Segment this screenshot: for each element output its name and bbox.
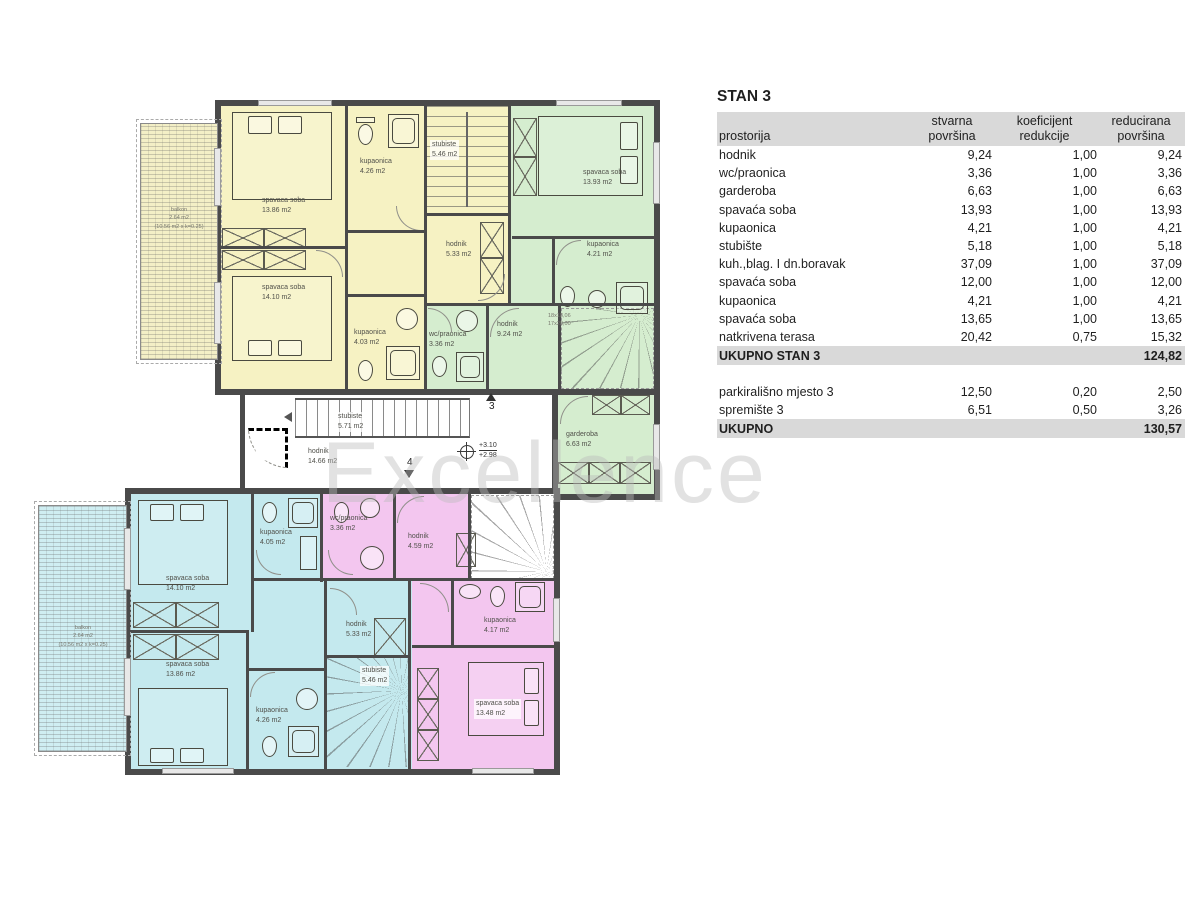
sink-symbol bbox=[456, 310, 478, 332]
wall bbox=[552, 236, 555, 306]
room-label: spavaca soba13.48 m2 bbox=[474, 699, 521, 719]
wall bbox=[345, 230, 427, 233]
pillow-symbol bbox=[180, 504, 204, 521]
table-row: parkirališno mjesto 312,500,202,50 bbox=[717, 383, 1185, 401]
wall bbox=[424, 213, 508, 216]
wardrobe-symbol bbox=[456, 533, 476, 567]
wardrobe-symbol bbox=[417, 699, 439, 730]
room-label: spavaca soba14.10 m2 bbox=[166, 574, 209, 594]
wardrobe-symbol bbox=[133, 634, 176, 660]
table-row: spavaća soba13,651,0013,65 bbox=[717, 310, 1185, 328]
stairs-pink-spiral bbox=[471, 495, 554, 579]
wall bbox=[345, 294, 427, 297]
wardrobe-symbol bbox=[620, 462, 651, 484]
floor-plan-sheet: balkon 2.64 m2 (10.56 m2 x k=0.25) balko… bbox=[0, 0, 1200, 900]
wardrobe-symbol bbox=[133, 602, 176, 628]
wall bbox=[246, 630, 249, 769]
washer-symbol bbox=[360, 546, 384, 570]
wall bbox=[425, 303, 654, 306]
washer-symbol bbox=[456, 352, 484, 382]
room-label: spavaca soba14.10 m2 bbox=[262, 283, 305, 303]
table-row: stubište5,181,005,18 bbox=[717, 237, 1185, 255]
wardrobe-symbol bbox=[589, 462, 620, 484]
room-label: wc/praonica3.36 m2 bbox=[330, 514, 367, 534]
room-label: spavaca soba13.93 m2 bbox=[583, 168, 626, 188]
wall bbox=[408, 580, 411, 769]
room-label: kupaonica4.05 m2 bbox=[260, 528, 292, 548]
wall bbox=[324, 655, 410, 658]
room-label: wc/praonica3.36 m2 bbox=[429, 330, 466, 350]
wardrobe-symbol bbox=[264, 228, 306, 248]
window bbox=[472, 768, 534, 774]
room-label: stubiste5.71 m2 bbox=[336, 412, 365, 432]
wardrobe-symbol bbox=[417, 668, 439, 699]
shower-symbol bbox=[386, 346, 420, 380]
pillow-symbol bbox=[248, 116, 272, 134]
table-row: natkrivena terasa20,420,7515,32 bbox=[717, 328, 1185, 346]
elevation-symbol bbox=[460, 445, 474, 459]
pillow-symbol bbox=[524, 700, 539, 726]
wall bbox=[451, 580, 454, 647]
wardrobe-symbol bbox=[513, 118, 537, 157]
window bbox=[162, 768, 234, 774]
header-stvarna-povrsina: stvarnapovršina bbox=[912, 114, 992, 146]
pillow-symbol bbox=[620, 122, 638, 150]
wall bbox=[320, 494, 323, 582]
table-row: kupaonica4,211,004,21 bbox=[717, 292, 1185, 310]
shower-symbol bbox=[288, 726, 319, 757]
room-label: kupaonica4.26 m2 bbox=[256, 706, 288, 726]
wall bbox=[221, 246, 347, 249]
balcony-lower-label: balkon 2.64 m2 (10.56 m2 x k=0.25) bbox=[46, 624, 120, 649]
room-label: kupaonica4.21 m2 bbox=[587, 240, 619, 260]
room-label: hodnik9.24 m2 bbox=[497, 320, 522, 340]
wardrobe-symbol bbox=[264, 250, 306, 270]
shower-symbol bbox=[515, 582, 545, 612]
wardrobe-symbol bbox=[176, 634, 219, 660]
wardrobe-symbol bbox=[176, 602, 219, 628]
table-gap bbox=[717, 365, 1185, 383]
balcony-upper-label: balkon 2.64 m2 (10.56 m2 x k=0.25) bbox=[144, 206, 214, 231]
balcony-upper bbox=[140, 123, 218, 360]
stair-rail bbox=[466, 112, 468, 207]
toilet-tank-symbol bbox=[356, 117, 375, 123]
table-row: garderoba6,631,006,63 bbox=[717, 182, 1185, 200]
table-row: hodnik9,241,009,24 bbox=[717, 146, 1185, 164]
entry-marker-4: 4 bbox=[407, 457, 413, 468]
room-label: stubiste5.46 m2 bbox=[360, 666, 389, 686]
wall bbox=[253, 578, 554, 581]
stairs-middle bbox=[295, 398, 470, 438]
pillow-symbol bbox=[278, 340, 302, 356]
wall bbox=[512, 236, 654, 239]
window bbox=[556, 100, 622, 106]
header-koeficijent-redukcije: koeficijentredukcije bbox=[992, 114, 1097, 146]
table-title: STAN 3 bbox=[717, 88, 1185, 106]
area-table: STAN 3 prostorija stvarnapovršina koefic… bbox=[717, 88, 1185, 438]
wall bbox=[508, 106, 511, 305]
table-row: spavaća soba13,931,0013,93 bbox=[717, 201, 1185, 219]
stair-note: 18x18,06 17x28,00 bbox=[548, 312, 571, 329]
wall bbox=[324, 580, 327, 769]
entry-marker-3-arrow bbox=[486, 393, 496, 401]
pillow-symbol bbox=[278, 116, 302, 134]
wall bbox=[468, 494, 471, 580]
window bbox=[124, 528, 131, 590]
entry-marker-3: 3 bbox=[489, 401, 495, 412]
sink-symbol bbox=[296, 688, 318, 710]
window bbox=[653, 142, 660, 204]
window bbox=[214, 148, 221, 206]
sink-symbol bbox=[396, 308, 418, 330]
table-header-row: prostorija stvarnapovršina koeficijentre… bbox=[717, 112, 1185, 146]
room-label: hodnik5.33 m2 bbox=[446, 240, 471, 260]
window bbox=[258, 100, 332, 106]
shower-symbol bbox=[616, 282, 648, 314]
table-row: spremište 36,510,503,26 bbox=[717, 401, 1185, 419]
room-label: hodnik14.66 m2 bbox=[308, 447, 337, 467]
wardrobe-symbol bbox=[417, 730, 439, 761]
wardrobe-symbol bbox=[558, 462, 589, 484]
elevation-values: +3.10 +2.98 bbox=[479, 441, 497, 460]
wall bbox=[486, 305, 489, 389]
table-row: spavaća soba12,001,0012,00 bbox=[717, 273, 1185, 291]
wall bbox=[131, 630, 248, 633]
pillow-symbol bbox=[248, 340, 272, 356]
pillow-symbol bbox=[150, 748, 174, 763]
wardrobe-symbol bbox=[222, 228, 264, 248]
wall bbox=[251, 494, 254, 632]
pillow-symbol bbox=[150, 504, 174, 521]
bathtub-symbol bbox=[300, 536, 317, 570]
wall bbox=[240, 395, 245, 490]
room-label: kupaonica4.03 m2 bbox=[354, 328, 386, 348]
room-label: kupaonica4.26 m2 bbox=[360, 157, 392, 177]
sink-symbol bbox=[459, 584, 481, 599]
wardrobe-symbol bbox=[480, 222, 504, 258]
header-reducirana-povrsina: reduciranapovršina bbox=[1097, 114, 1185, 146]
room-label: hodnik4.59 m2 bbox=[408, 532, 433, 552]
total-row: UKUPNO 130,57 bbox=[717, 419, 1185, 438]
pillow-symbol bbox=[180, 748, 204, 763]
table-row: kuh.,blag. I dn.boravak37,091,0037,09 bbox=[717, 255, 1185, 273]
entry-marker-4-arrow bbox=[404, 470, 414, 478]
wardrobe-symbol bbox=[222, 250, 264, 270]
header-prostorija: prostorija bbox=[717, 129, 912, 146]
window bbox=[124, 658, 131, 716]
table-row: wc/praonica3,361,003,36 bbox=[717, 164, 1185, 182]
wardrobe-symbol bbox=[374, 618, 406, 656]
pillow-symbol bbox=[524, 668, 539, 694]
room-label: spavaca soba13.86 m2 bbox=[262, 196, 305, 216]
room-label: garderoba6.63 m2 bbox=[566, 430, 598, 450]
window bbox=[653, 424, 660, 470]
wall bbox=[393, 494, 396, 580]
window bbox=[553, 598, 560, 642]
wardrobe-symbol bbox=[592, 395, 621, 415]
wall bbox=[412, 645, 554, 648]
wall bbox=[248, 668, 326, 671]
subtotal-row: UKUPNO STAN 3 124,82 bbox=[717, 346, 1185, 365]
table-row: kupaonica4,211,004,21 bbox=[717, 219, 1185, 237]
window bbox=[214, 282, 221, 344]
shower-symbol bbox=[388, 114, 419, 148]
room-label: spavaca soba13.86 m2 bbox=[166, 660, 209, 680]
shower-symbol bbox=[288, 498, 318, 528]
wall bbox=[424, 106, 427, 389]
room-label: stubiste5.46 m2 bbox=[430, 140, 459, 160]
stair-direction-arrow bbox=[284, 412, 292, 422]
room-label: hodnik5.33 m2 bbox=[346, 620, 371, 640]
wardrobe-symbol bbox=[513, 157, 537, 196]
stairs-green-spiral bbox=[561, 308, 654, 389]
room-label: kupaonica4.17 m2 bbox=[484, 616, 516, 636]
wardrobe-symbol bbox=[621, 395, 650, 415]
